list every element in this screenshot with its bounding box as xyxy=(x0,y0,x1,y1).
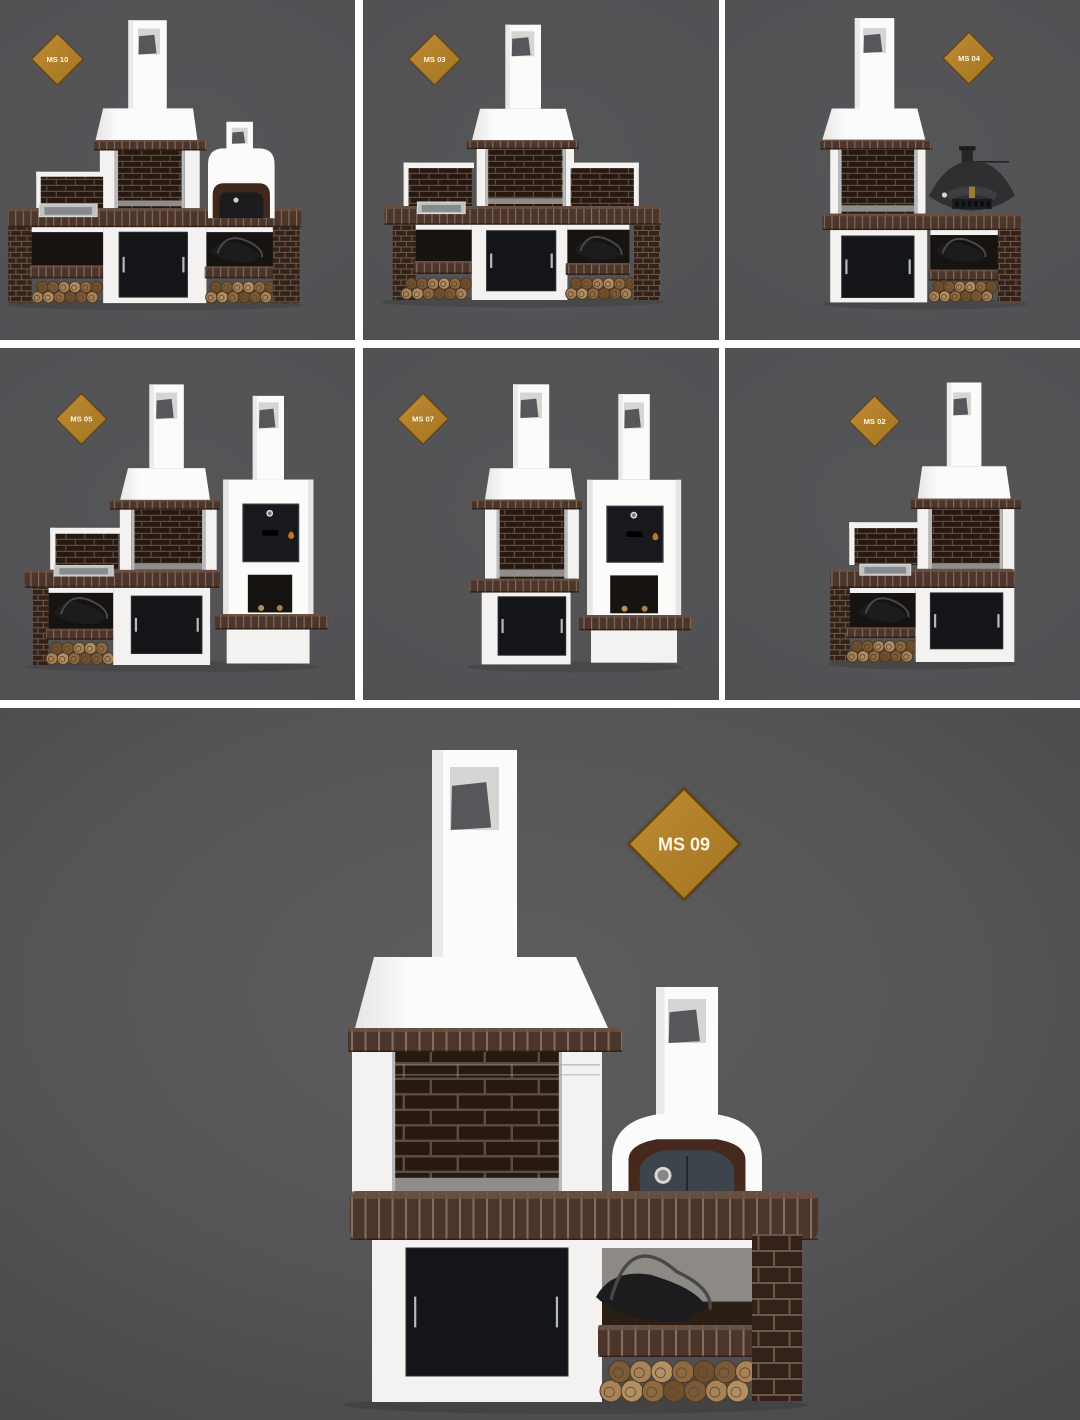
svg-text:MS 07: MS 07 xyxy=(412,415,434,424)
svg-text:MS 02: MS 02 xyxy=(864,417,886,426)
svg-text:MS 04: MS 04 xyxy=(958,54,981,63)
svg-text:MS 05: MS 05 xyxy=(70,415,92,424)
svg-text:MS 03: MS 03 xyxy=(424,55,446,64)
svg-text:MS 09: MS 09 xyxy=(658,834,710,854)
svg-text:MS 10: MS 10 xyxy=(46,55,68,64)
